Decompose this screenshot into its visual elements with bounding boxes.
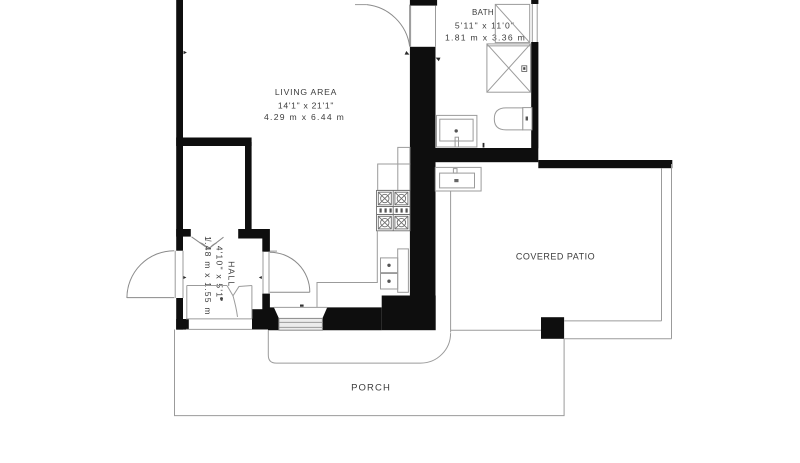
svg-text:BATH: BATH [472,8,494,17]
svg-text:4.29 m x 6.44 m: 4.29 m x 6.44 m [264,112,345,122]
svg-text:5'11" x 11'0": 5'11" x 11'0" [455,20,515,30]
svg-text:1.81 m x 3.36 m: 1.81 m x 3.36 m [445,32,526,42]
svg-text:COVERED PATIO: COVERED PATIO [516,252,595,262]
svg-text:14'1" x 21'1": 14'1" x 21'1" [278,101,334,111]
svg-text:LIVING AREA: LIVING AREA [275,87,337,97]
svg-text:PORCH: PORCH [351,383,391,394]
